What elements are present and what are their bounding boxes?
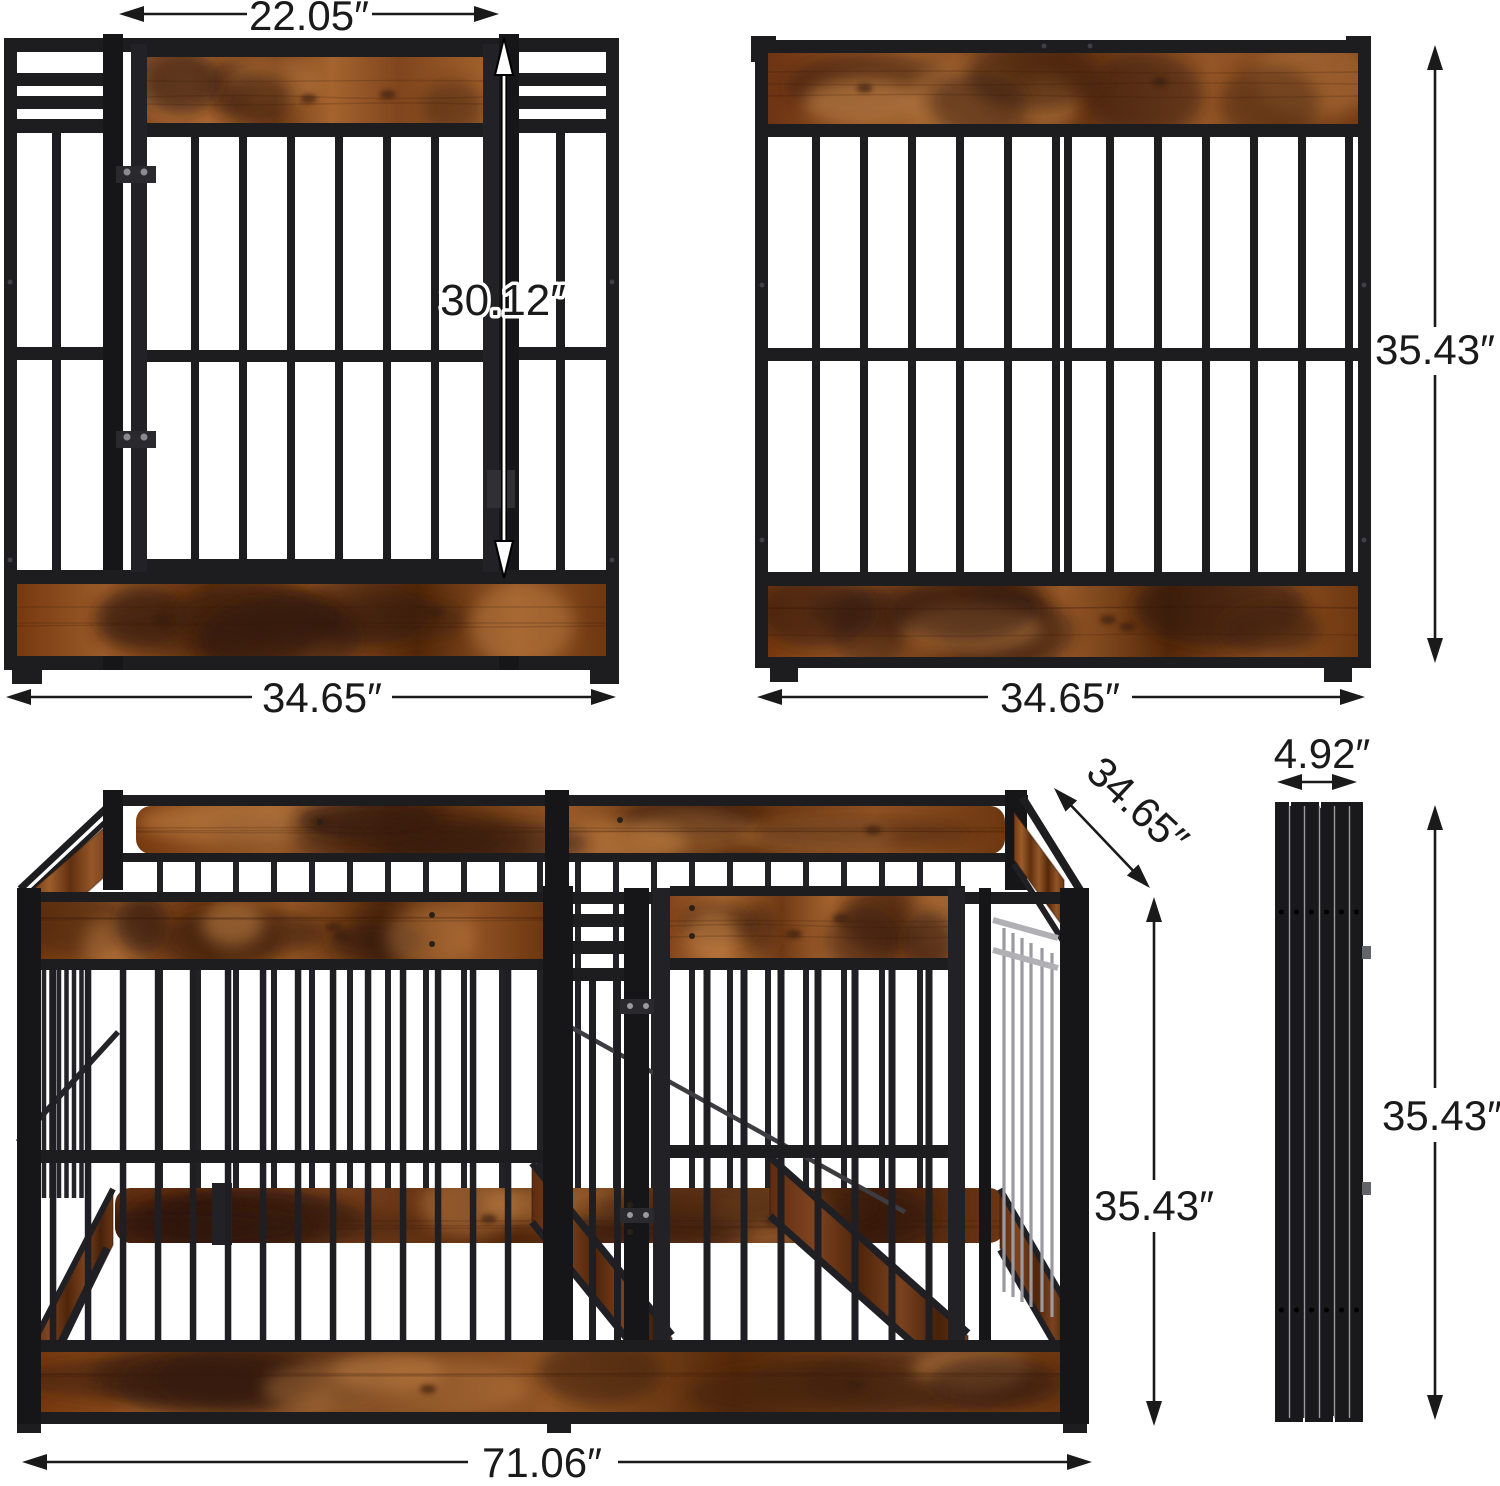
svg-text:30.12″: 30.12″ xyxy=(440,276,566,325)
svg-text:71.06″: 71.06″ xyxy=(482,1439,602,1481)
svg-text:22.05″: 22.05″ xyxy=(249,0,369,39)
svg-text:34.65″: 34.65″ xyxy=(262,674,382,721)
svg-text:4.92″: 4.92″ xyxy=(1274,730,1371,777)
svg-text:34.65″: 34.65″ xyxy=(1078,747,1198,863)
svg-text:34.65″: 34.65″ xyxy=(1000,674,1120,721)
svg-text:35.43″: 35.43″ xyxy=(1094,1182,1214,1229)
svg-text:35.43″: 35.43″ xyxy=(1375,326,1495,373)
svg-text:35.43″: 35.43″ xyxy=(1382,1092,1500,1139)
